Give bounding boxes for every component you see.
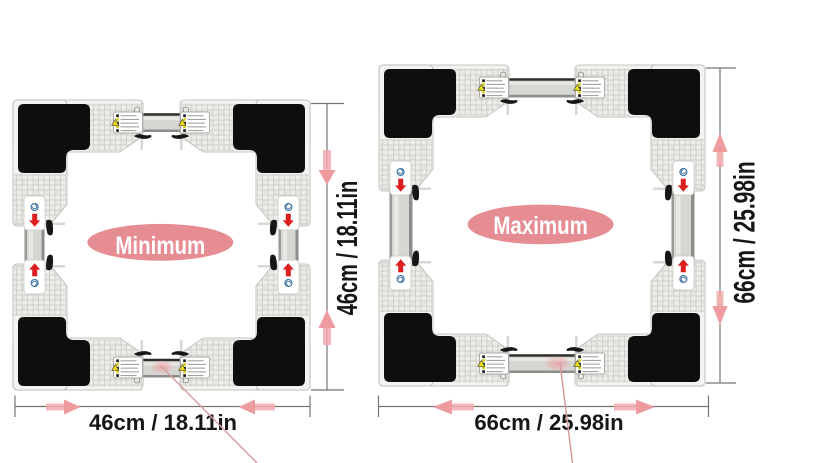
svg-text:46cm / 18.11in: 46cm / 18.11in xyxy=(89,410,237,435)
svg-text:66cm / 25.98in: 66cm / 25.98in xyxy=(474,410,623,435)
svg-text:Minimum: Minimum xyxy=(115,232,205,259)
svg-text:Maximum: Maximum xyxy=(493,212,587,239)
svg-text:46cm / 18.11in: 46cm / 18.11in xyxy=(331,181,364,315)
svg-text:66cm / 25.98in: 66cm / 25.98in xyxy=(729,161,761,303)
